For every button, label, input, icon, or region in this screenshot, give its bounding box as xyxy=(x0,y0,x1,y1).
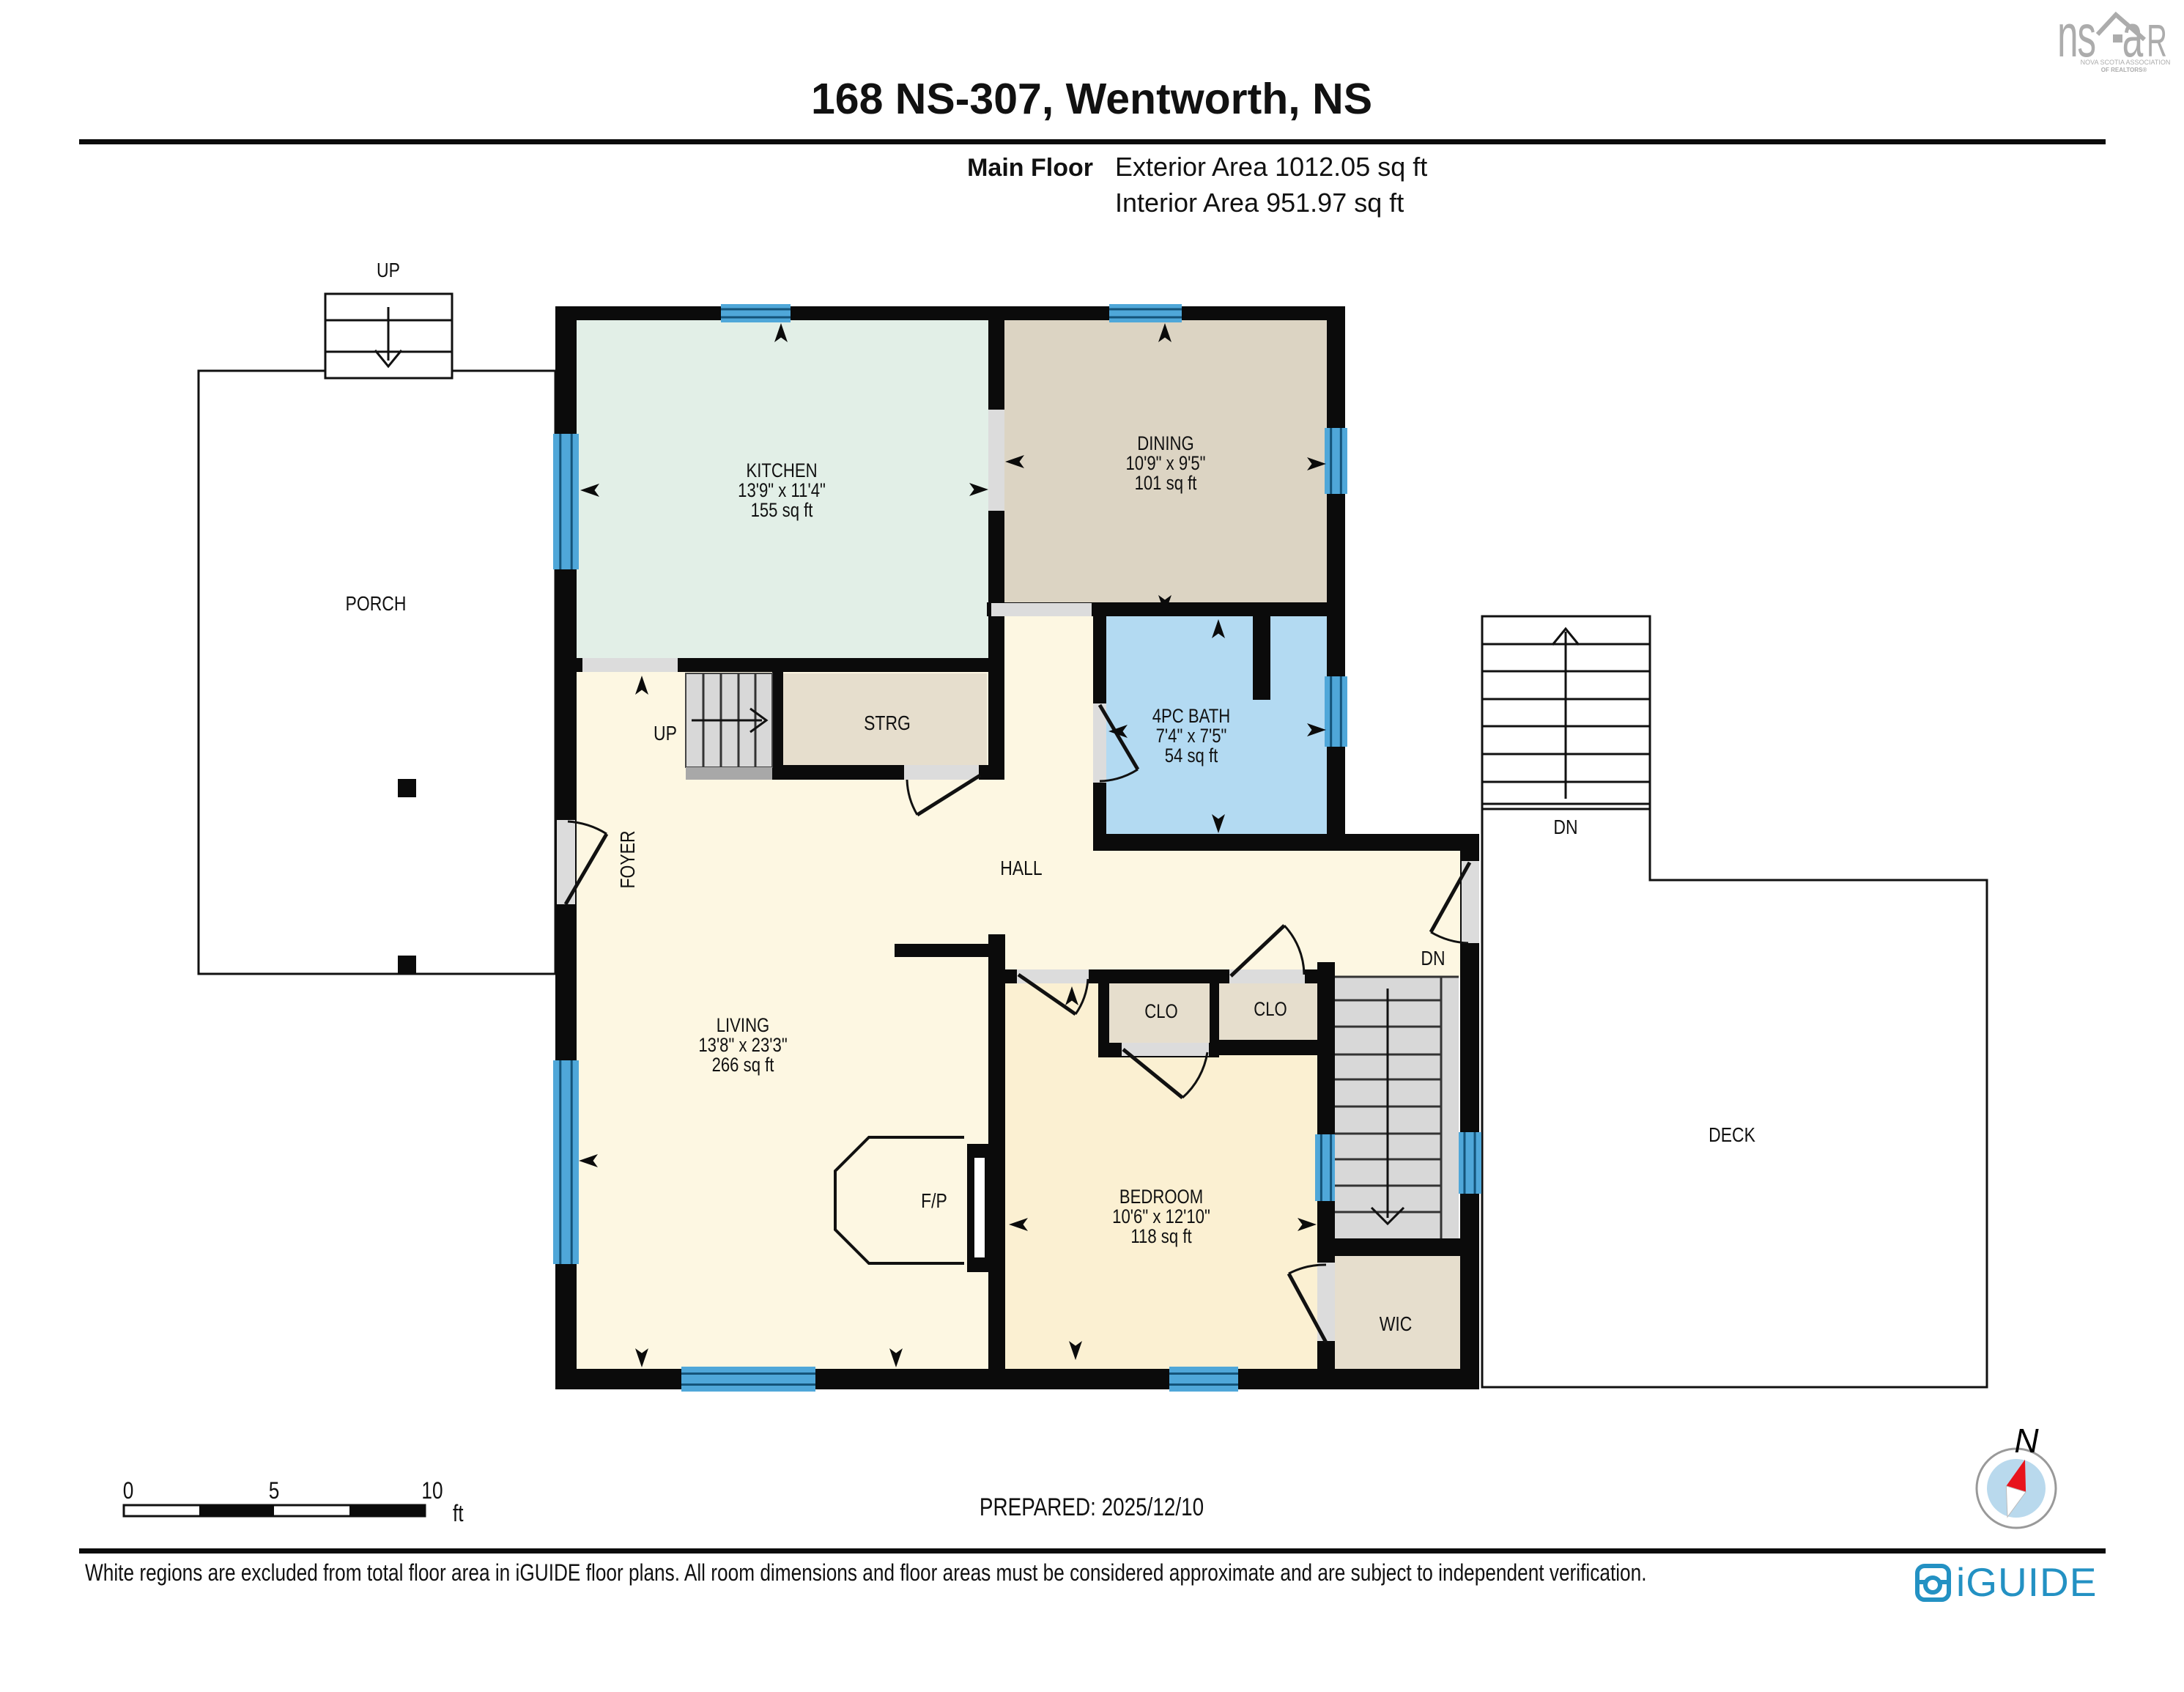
svg-text:ft: ft xyxy=(453,1501,464,1527)
svg-text:iGUIDE: iGUIDE xyxy=(1956,1559,2097,1605)
svg-text:5: 5 xyxy=(269,1479,280,1504)
svg-text:FOYER: FOYER xyxy=(617,830,640,888)
svg-text:13'9" x 11'4": 13'9" x 11'4" xyxy=(738,480,826,502)
svg-text:WIC: WIC xyxy=(1380,1313,1413,1336)
svg-text:UP: UP xyxy=(654,723,677,745)
svg-text:F/P: F/P xyxy=(921,1190,947,1213)
svg-text:HALL: HALL xyxy=(1000,857,1042,880)
svg-text:4PC BATH: 4PC BATH xyxy=(1152,706,1231,728)
svg-text:118 sq ft: 118 sq ft xyxy=(1130,1226,1191,1248)
svg-text:0: 0 xyxy=(123,1479,134,1504)
svg-text:BEDROOM: BEDROOM xyxy=(1119,1186,1203,1208)
svg-text:DN: DN xyxy=(1421,947,1445,970)
svg-text:10: 10 xyxy=(421,1479,443,1504)
svg-text:13'8" x 23'3": 13'8" x 23'3" xyxy=(698,1035,787,1057)
svg-text:KITCHEN: KITCHEN xyxy=(746,460,817,482)
svg-text:Main Floor: Main Floor xyxy=(967,154,1093,182)
svg-text:Interior Area 951.97 sq ft: Interior Area 951.97 sq ft xyxy=(1115,188,1404,218)
svg-text:UP: UP xyxy=(377,259,400,282)
svg-text:PREPARED: 2025/12/10: PREPARED: 2025/12/10 xyxy=(980,1493,1204,1521)
svg-text:CLO: CLO xyxy=(1144,1001,1177,1023)
svg-text:7'4" x 7'5": 7'4" x 7'5" xyxy=(1156,725,1227,747)
svg-text:OF REALTORS®: OF REALTORS® xyxy=(2101,67,2147,73)
svg-text:NOVA SCOTIA ASSOCIATION: NOVA SCOTIA ASSOCIATION xyxy=(2081,59,2171,66)
svg-text:DINING: DINING xyxy=(1137,433,1193,455)
svg-text:N: N xyxy=(2014,1422,2039,1460)
svg-text:Exterior Area 1012.05 sq ft: Exterior Area 1012.05 sq ft xyxy=(1115,152,1427,182)
svg-text:168 NS-307, Wentworth, NS: 168 NS-307, Wentworth, NS xyxy=(811,75,1372,123)
svg-text:DN: DN xyxy=(1553,816,1577,839)
svg-text:101 sq ft: 101 sq ft xyxy=(1135,473,1197,495)
svg-text:10'9" x 9'5": 10'9" x 9'5" xyxy=(1125,453,1205,475)
svg-text:10'6" x 12'10": 10'6" x 12'10" xyxy=(1112,1206,1210,1228)
svg-text:CLO: CLO xyxy=(1254,999,1287,1021)
svg-text:266 sq ft: 266 sq ft xyxy=(712,1054,774,1076)
svg-text:DECK: DECK xyxy=(1709,1124,1755,1147)
svg-text:155 sq ft: 155 sq ft xyxy=(751,500,813,522)
svg-text:LIVING: LIVING xyxy=(717,1015,770,1037)
svg-text:54 sq ft: 54 sq ft xyxy=(1165,745,1218,767)
svg-text:White regions are excluded fro: White regions are excluded from total fl… xyxy=(85,1561,1647,1586)
svg-text:PORCH: PORCH xyxy=(346,593,407,616)
svg-text:STRG: STRG xyxy=(864,712,911,735)
